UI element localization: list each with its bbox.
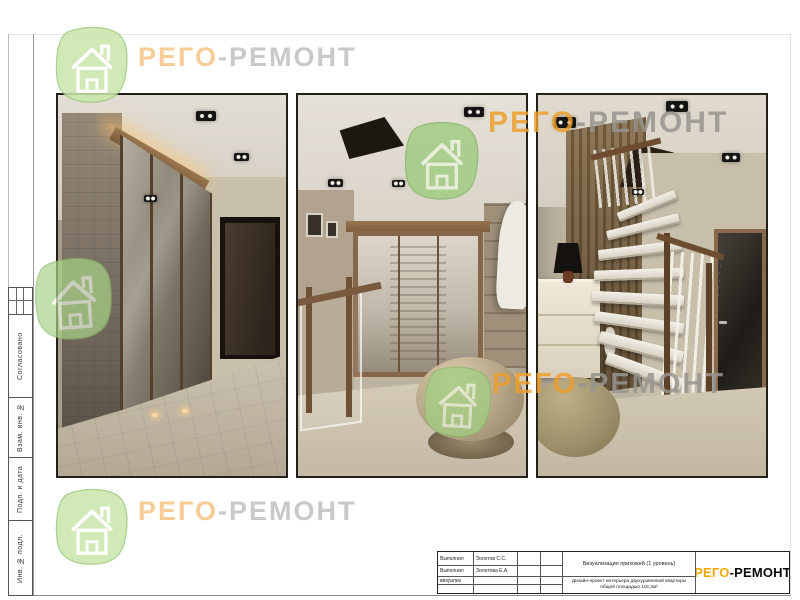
sheet-frame-bottom	[8, 595, 791, 596]
titleblock-role-1: Выполнил	[438, 552, 474, 566]
plinth-light	[152, 413, 158, 417]
ceiling-spotlight-icon	[666, 101, 688, 112]
sidebar-label-vzam-inv: Взам. инв. №	[9, 398, 32, 457]
ceiling-spotlight-icon	[464, 107, 484, 117]
revision-cell	[24, 288, 32, 301]
logo-black-part: -РЕМОНТ	[730, 565, 789, 580]
titleblock-signature-cell	[518, 566, 541, 577]
titleblock-name-2: Золотова Е.А.	[474, 566, 518, 577]
house-logo-icon	[44, 486, 140, 568]
entrance-door	[225, 223, 275, 355]
sidebar-label-inv-num: Инв. № подл.	[9, 521, 32, 595]
render-panel-spiral-staircase	[536, 93, 768, 478]
revision-cell	[9, 288, 17, 301]
door-handle	[719, 321, 727, 324]
table-lamp-base	[563, 271, 573, 283]
ceiling-spotlight-icon	[392, 180, 405, 187]
sidebar-label-sign-date: Подп. и дата	[9, 458, 32, 520]
revision-cell	[9, 301, 17, 314]
revision-mini-table	[8, 287, 33, 315]
sidebar-cell-inv-num: Инв. № подл.	[8, 520, 33, 596]
project-description: Дизайн-проект интерьера двухуровневой кв…	[563, 577, 696, 593]
titleblock-date-cell	[541, 585, 563, 593]
brand-orange-part: РЕГО	[138, 42, 218, 72]
sheet-frame-top	[8, 34, 791, 35]
ceiling-spotlight-icon	[554, 117, 576, 128]
titleblock-date-cell	[541, 577, 563, 585]
dresser	[538, 279, 600, 378]
ceiling-spotlight-icon	[328, 179, 343, 187]
titleblock-date-cell	[541, 566, 563, 577]
titleblock-name-4	[474, 585, 518, 593]
titleblock-date-cell	[541, 552, 563, 566]
title-block: Выполнил Золотов С.С. Визуализация прихо…	[437, 551, 790, 594]
picture-frame	[326, 221, 338, 238]
drawing-title: Визуализация прихожей (1 уровень)	[563, 552, 696, 577]
brand-gray-part: -РЕМОНТ	[218, 42, 357, 72]
brand-watermark-text: РЕГО-РЕМОНТ	[138, 496, 356, 527]
ceiling-spotlight-icon	[234, 153, 249, 161]
plinth-light	[182, 409, 188, 413]
sidebar-cell-vzam-inv: Взам. инв. №	[8, 397, 33, 458]
titleblock-role-3: визуализ	[438, 577, 474, 585]
sidebar-cell-agreed: Согласовано	[8, 314, 33, 398]
ceiling-spotlight-icon	[722, 153, 740, 162]
brand-gray-part: -РЕМОНТ	[218, 496, 357, 526]
ceiling-spotlight-icon	[144, 195, 157, 202]
railing-post	[664, 233, 670, 401]
round-pouf	[416, 357, 524, 441]
sidebar-cell-sign-date: Подп. и дата	[8, 457, 33, 521]
railing-post	[346, 277, 352, 417]
brand-orange-part: РЕГО	[138, 496, 218, 526]
titleblock-role-4	[438, 585, 474, 593]
render-panel-hallway-wardrobe	[56, 93, 288, 478]
revision-cell	[17, 301, 25, 314]
titleblock-signature-cell	[518, 585, 541, 593]
ceiling-spotlight-icon	[196, 111, 216, 121]
picture-frame	[306, 213, 323, 237]
revision-cell	[24, 301, 32, 314]
logo-orange-part: РЕГО	[696, 565, 730, 580]
render-panel-hallway-pouf	[296, 93, 528, 478]
brand-watermark-text: РЕГО-РЕМОНТ	[138, 42, 356, 73]
railing-post	[306, 287, 312, 413]
design-sheet-page: { "brand": { "name_orange": "РЕГО", "nam…	[0, 0, 800, 600]
titleblock-logo: РЕГО-РЕМОНТ	[696, 552, 789, 593]
railing-post	[706, 263, 712, 413]
sheet-frame-right	[790, 34, 791, 595]
project-line-2: общей площадью 115,3м²	[600, 585, 658, 591]
titleblock-signature-cell	[518, 577, 541, 585]
titleblock-name-3	[474, 577, 518, 585]
ceiling-spotlight-icon	[632, 189, 644, 195]
mirror-stair-reflection	[390, 240, 446, 360]
wardrobe-side-panel	[62, 113, 122, 431]
titleblock-role-2: Выполнил	[438, 566, 474, 577]
sidebar-label-agreed: Согласовано	[9, 315, 32, 397]
sheet-frame-left-inner	[33, 34, 34, 595]
revision-cell	[17, 288, 25, 301]
titleblock-signature-cell	[518, 552, 541, 566]
titleblock-name-1: Золотов С.С.	[474, 552, 518, 566]
